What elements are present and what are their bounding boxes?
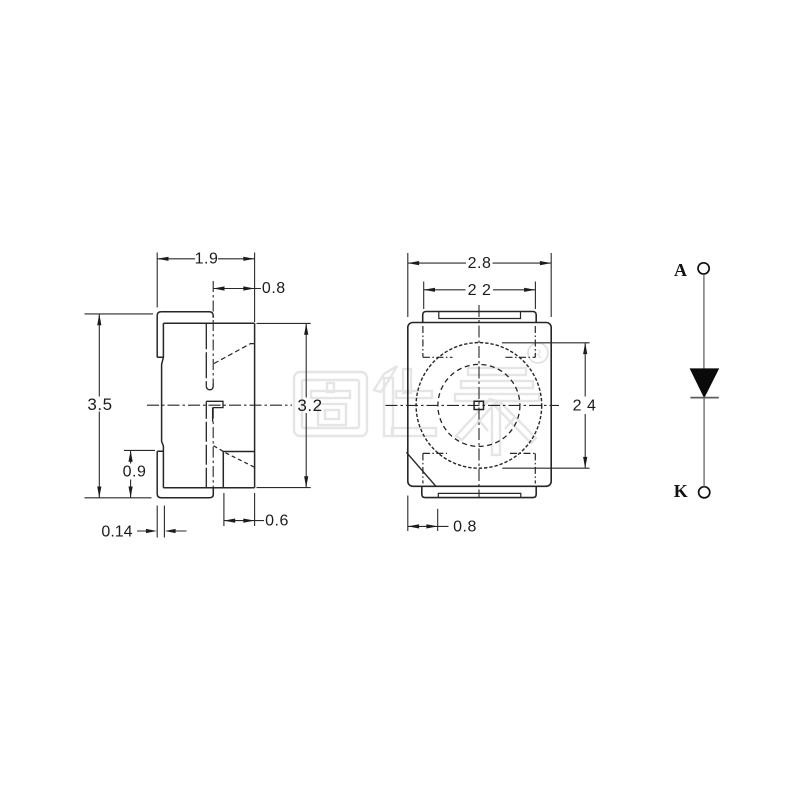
svg-text:1.9: 1.9: [195, 251, 219, 268]
svg-text:A: A: [674, 260, 688, 280]
svg-text:3.2: 3.2: [297, 396, 322, 415]
svg-text:0.6: 0.6: [265, 513, 289, 530]
svg-text:0.8: 0.8: [262, 280, 286, 297]
svg-text:0.14: 0.14: [101, 524, 132, 541]
svg-text:3.5: 3.5: [87, 395, 112, 414]
svg-text:0.8: 0.8: [453, 518, 477, 535]
svg-text:2 2: 2 2: [468, 282, 492, 299]
svg-text:2.8: 2.8: [468, 255, 492, 272]
svg-text:2 4: 2 4: [573, 397, 597, 414]
svg-text:K: K: [674, 481, 689, 501]
svg-text:0.9: 0.9: [123, 464, 147, 481]
